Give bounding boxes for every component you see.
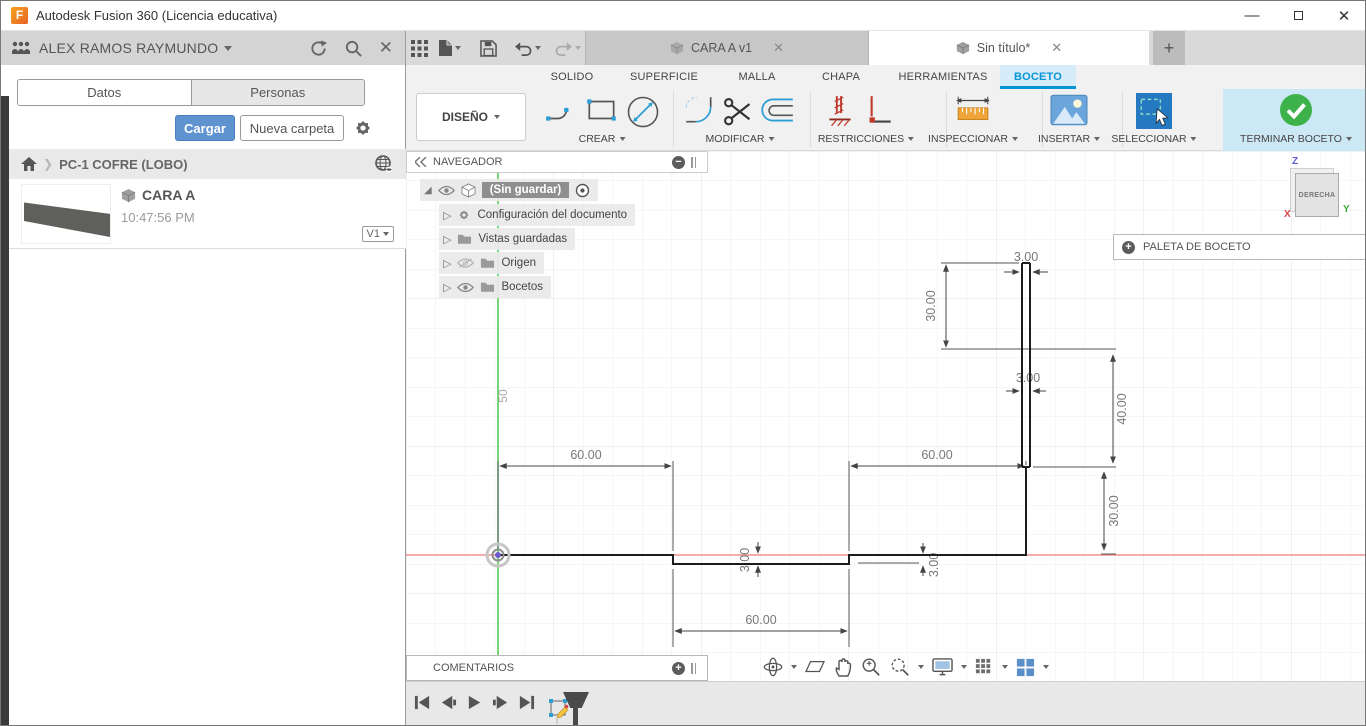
view-cube-face[interactable]: DERECHA — [1295, 173, 1339, 217]
new-tab-button[interactable]: + — [1153, 31, 1185, 65]
save-icon[interactable] — [480, 40, 497, 57]
inspeccionar-dropdown[interactable]: INSPECCIONAR — [928, 133, 1018, 145]
ribbon: SOLIDO SUPERFICIE MALLA CHAPA HERRAMIENT… — [406, 65, 1366, 151]
timeline-bar — [406, 681, 1366, 726]
browser-row-doc-settings[interactable]: ▷ Configuración del documento — [439, 204, 635, 226]
dim-3-base-right: 3.00 — [927, 553, 941, 577]
step-back-icon[interactable] — [440, 694, 457, 711]
create-circle-tool-icon[interactable] — [624, 93, 662, 131]
orbit-icon[interactable] — [762, 656, 784, 678]
refresh-icon[interactable] — [309, 39, 328, 58]
browser-panel-header[interactable]: NAVEGADOR − — [406, 151, 708, 173]
ribbon-tab-solido[interactable]: SOLIDO — [551, 65, 594, 89]
search-icon[interactable] — [344, 39, 363, 58]
tab-personas[interactable]: Personas — [192, 80, 365, 105]
look-at-icon[interactable] — [804, 658, 826, 676]
dim-60-bottom: 60.00 — [745, 613, 776, 627]
fusion360-window: F Autodesk Fusion 360 (Licencia educativ… — [0, 0, 1366, 726]
apps-grid-icon[interactable] — [411, 40, 428, 57]
browser-row-origin[interactable]: ▷ Origen — [439, 252, 544, 274]
ribbon-tab-herramientas[interactable]: HERRAMIENTAS — [899, 65, 988, 89]
collapse-tree-icon[interactable]: − — [672, 156, 685, 169]
close-tab-icon[interactable]: ✕ — [773, 40, 784, 56]
expand-open-icon[interactable]: ◢ — [424, 185, 432, 196]
go-to-start-icon[interactable] — [414, 694, 431, 711]
data-panel: Datos Personas Cargar Nueva carpeta ❯ PC… — [9, 65, 406, 726]
document-cube-icon — [670, 41, 684, 55]
expand-closed-icon[interactable]: ▷ — [443, 281, 451, 294]
breadcrumb: ❯ PC-1 COFRE (LOBO) — [9, 149, 406, 179]
sketch-palette-bar[interactable]: + PALETA DE BOCETO — [1113, 234, 1366, 260]
display-settings-dropdown[interactable] — [961, 665, 967, 669]
insert-image-icon[interactable] — [1050, 93, 1088, 127]
document-timestamp: 10:47:56 PM — [121, 210, 195, 225]
ribbon-tab-chapa[interactable]: CHAPA — [822, 65, 860, 89]
maximize-button[interactable] — [1275, 1, 1321, 30]
orbit-dropdown[interactable] — [791, 665, 797, 669]
grid-snap-dropdown[interactable] — [1002, 665, 1008, 669]
create-line-tool-icon[interactable] — [544, 93, 578, 127]
title-bar: F Autodesk Fusion 360 (Licencia educativ… — [1, 1, 1366, 31]
visibility-off-icon[interactable] — [457, 257, 474, 269]
dim-30-right: 30.00 — [1107, 495, 1121, 526]
terminar-boceto-button[interactable]: TERMINAR BOCETO — [1240, 133, 1352, 145]
visibility-eye-icon[interactable] — [438, 185, 455, 196]
ribbon-tab-superficie[interactable]: SUPERFICIE — [630, 65, 698, 89]
data-panel-tabs: Datos Personas — [17, 79, 365, 106]
zoom-window-dropdown[interactable] — [918, 665, 924, 669]
dim-3-mid: 3.00 — [1016, 371, 1040, 385]
chevron-down-icon[interactable] — [224, 46, 232, 51]
navigation-toolbar — [762, 656, 1049, 678]
ribbon-tab-boceto[interactable]: BOCETO — [1000, 65, 1076, 89]
expand-closed-icon[interactable]: ▷ — [443, 233, 451, 246]
insertar-dropdown[interactable]: INSERTAR — [1038, 133, 1100, 145]
constraint-fix-icon[interactable] — [824, 93, 856, 129]
go-to-end-icon[interactable] — [518, 694, 535, 711]
modificar-dropdown[interactable]: MODIFICAR — [706, 133, 775, 145]
ribbon-toolbar: DISEÑO CREAR MODIFICAR RESTRICCIONES INS… — [406, 89, 1366, 151]
browser-row-sketches[interactable]: ▷ Bocetos — [439, 276, 551, 298]
folder-icon — [457, 233, 472, 245]
fillet-tool-icon[interactable] — [682, 93, 716, 127]
fusion-logo-icon: F — [11, 7, 28, 24]
people-icon — [11, 41, 31, 55]
window-title: Autodesk Fusion 360 (Licencia educativa) — [36, 8, 277, 23]
pan-hand-icon[interactable] — [833, 656, 853, 678]
undo-button[interactable] — [514, 40, 541, 57]
dim-3-base-left: 3.00 — [738, 548, 752, 572]
document-cube-icon — [956, 41, 970, 55]
expand-palette-icon[interactable]: + — [1122, 241, 1135, 254]
settings-gear-icon — [457, 208, 471, 222]
dim-60-mid: 60.00 — [921, 448, 952, 462]
expand-comments-icon[interactable]: + — [672, 662, 685, 675]
comments-title: COMENTARIOS — [433, 662, 514, 674]
measure-ruler-icon[interactable] — [954, 93, 992, 127]
folder-icon — [480, 257, 495, 269]
close-panel-icon[interactable]: ✕ — [379, 38, 393, 58]
globe-share-icon[interactable] — [374, 155, 394, 173]
select-tool-icon[interactable] — [1136, 93, 1172, 129]
expand-closed-icon[interactable]: ▷ — [443, 209, 451, 222]
panel-grip[interactable] — [691, 157, 699, 168]
window-edge-strip — [1, 96, 9, 726]
collapse-panel-icon[interactable] — [415, 157, 427, 167]
crear-dropdown[interactable]: CREAR — [579, 133, 626, 145]
comments-bar[interactable]: COMENTARIOS + — [406, 655, 708, 681]
new-folder-button[interactable]: Nueva carpeta — [240, 115, 344, 141]
file-icon — [438, 39, 453, 57]
restricciones-dropdown[interactable]: RESTRICCIONES — [818, 133, 914, 145]
dim-60-left: 60.00 — [570, 448, 601, 462]
document-tab-inactive[interactable]: CARA A v1 ✕ — [585, 31, 869, 65]
z-axis-label: Z — [1292, 156, 1298, 167]
play-icon[interactable] — [466, 694, 483, 711]
document-thumbnail — [21, 184, 111, 244]
ribbon-tab-malla[interactable]: MALLA — [738, 65, 775, 89]
axis-scale-label: 50 — [496, 389, 510, 403]
seleccionar-dropdown[interactable]: SELECCIONAR — [1111, 133, 1196, 145]
panel-grip[interactable] — [691, 663, 699, 674]
document-tab-active[interactable]: Sin título* ✕ — [869, 31, 1149, 65]
dim-40-right: 40.00 — [1115, 393, 1129, 424]
viewports-icon[interactable] — [1015, 657, 1036, 678]
folder-icon — [480, 281, 495, 293]
create-rectangle-tool-icon[interactable] — [584, 93, 620, 127]
sketch-palette-title: PALETA DE BOCETO — [1143, 241, 1251, 253]
dim-3-top: 3.00 — [1014, 250, 1038, 264]
tab-datos[interactable]: Datos — [18, 80, 192, 105]
data-settings-gear-icon[interactable] — [352, 117, 374, 139]
component-cube-icon — [121, 188, 136, 203]
finish-sketch-check-icon[interactable] — [1278, 92, 1314, 128]
display-settings-icon[interactable] — [931, 657, 954, 677]
close-tab-icon[interactable]: ✕ — [1051, 40, 1062, 56]
minimize-button[interactable]: — — [1229, 1, 1275, 30]
zoom-icon[interactable] — [860, 656, 882, 678]
activate-target-icon[interactable] — [575, 183, 590, 198]
timeline-marker[interactable] — [573, 708, 578, 726]
workspace-selector[interactable]: DISEÑO — [416, 93, 526, 141]
account-name[interactable]: ALEX RAMOS RAYMUNDO — [39, 40, 218, 56]
visibility-eye-icon[interactable] — [457, 282, 474, 293]
y-axis-label: Y — [1343, 204, 1350, 215]
version-badge[interactable]: V1 — [362, 226, 394, 242]
document-title: CARA A — [142, 187, 195, 203]
breadcrumb-separator-icon: ❯ — [43, 157, 53, 171]
upload-button[interactable]: Cargar — [175, 115, 235, 141]
document-list-item[interactable]: CARA A 10:47:56 PM V1 — [9, 179, 406, 249]
browser-root-row[interactable]: ◢ (Sin guardar) — [420, 179, 598, 201]
viewports-dropdown[interactable] — [1043, 665, 1049, 669]
application-bar: CARA A v1 ✕ Sin título* ✕ + ? AR — [406, 31, 1366, 65]
close-button[interactable]: ✕ — [1321, 1, 1366, 30]
home-icon[interactable] — [21, 157, 37, 171]
offset-tool-icon[interactable] — [758, 93, 796, 127]
zoom-window-icon[interactable] — [889, 656, 911, 678]
undo-icon — [514, 40, 533, 57]
redo-button[interactable] — [554, 40, 581, 57]
browser-row-named-views[interactable]: ▷ Vistas guardadas — [439, 228, 575, 250]
file-menu-button[interactable] — [438, 39, 461, 57]
trim-scissors-icon[interactable] — [720, 93, 754, 129]
sketch-canvas[interactable]: 50 30.00 — [406, 151, 1366, 681]
unsaved-document-label[interactable]: (Sin guardar) — [482, 182, 570, 198]
x-axis-label: X — [1284, 209, 1291, 220]
constraint-hv-icon[interactable] — [862, 93, 894, 129]
expand-closed-icon[interactable]: ▷ — [443, 257, 451, 270]
redo-icon — [554, 40, 573, 57]
view-cube[interactable]: Z DERECHA X Y — [1282, 156, 1362, 226]
document-cube-icon — [461, 183, 476, 198]
grid-snap-icon[interactable] — [974, 657, 995, 678]
step-forward-icon[interactable] — [492, 694, 509, 711]
breadcrumb-folder[interactable]: PC-1 COFRE (LOBO) — [59, 157, 188, 172]
browser-panel-title: NAVEGADOR — [433, 156, 502, 168]
data-panel-header: ALEX RAMOS RAYMUNDO ✕ — [1, 31, 406, 65]
dim-30-top: 30.00 — [924, 290, 938, 321]
